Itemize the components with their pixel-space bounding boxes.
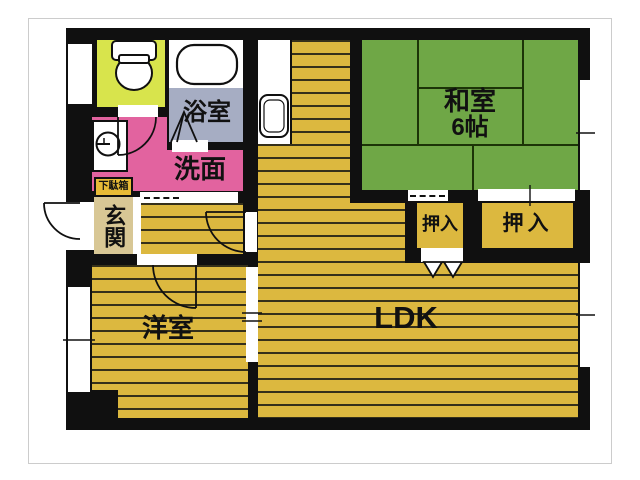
wall-corner-block [92,390,118,418]
floorplan-canvas: 和室 6帖 押入 押入 LDK 浴室 洗面 下駄箱 玄関 [0,0,640,480]
washitsu-size-label: 6帖 [402,115,538,140]
closet-right-label: 押入 [482,213,573,235]
toilet-door-opening [118,105,158,117]
window-ldk [580,263,590,367]
western-door-opening [137,254,197,265]
closet-right: 押入 [482,203,573,248]
shoe-cabinet: 下駄箱 [94,177,133,197]
entrance-step [133,197,141,254]
sliding-door-dashed-icon [410,195,445,197]
washitsu-sliding-door [408,190,448,201]
entrance-label: 玄関 [102,200,125,252]
window-washitsu [580,80,590,190]
tatami-line [362,144,578,146]
washitsu-label: 和室 6帖 [402,88,538,140]
closet-left-door-opening [421,248,463,262]
room-entrance: 玄関 [94,197,133,254]
washroom-label: 洗面 [145,156,255,183]
ldk-label: LDK [366,302,446,335]
window-toilet [68,44,92,104]
hallway-floor [141,203,243,254]
bathroom-label: 浴室 [171,100,243,125]
western-ldk-opening [246,267,258,362]
hallway-sliding-door [140,192,238,203]
sliding-door-dashed-icon [144,197,179,199]
room-bathtub-area [169,40,243,88]
closet-left: 押入 [417,203,463,248]
room-bathroom: 浴室 [169,88,243,142]
wall [350,40,362,190]
shoe-cabinet-label: 下駄箱 [96,179,131,194]
room-washitsu: 和室 6帖 [362,40,578,190]
window-western [68,287,90,392]
closet-left-label: 押入 [417,215,463,234]
washing-machine [92,120,128,172]
kitchen-counter [258,40,292,144]
room-toilet [97,40,165,107]
bathroom-door-opening [172,140,208,152]
room-washroom-2: 洗面 [167,150,243,191]
closet-right-sliding-door [478,189,575,201]
western-room-label: 洋室 [126,315,210,342]
entrance-door-opening [66,202,94,250]
tatami-line [472,144,474,190]
hallway-ldk-door-opening [245,212,257,252]
